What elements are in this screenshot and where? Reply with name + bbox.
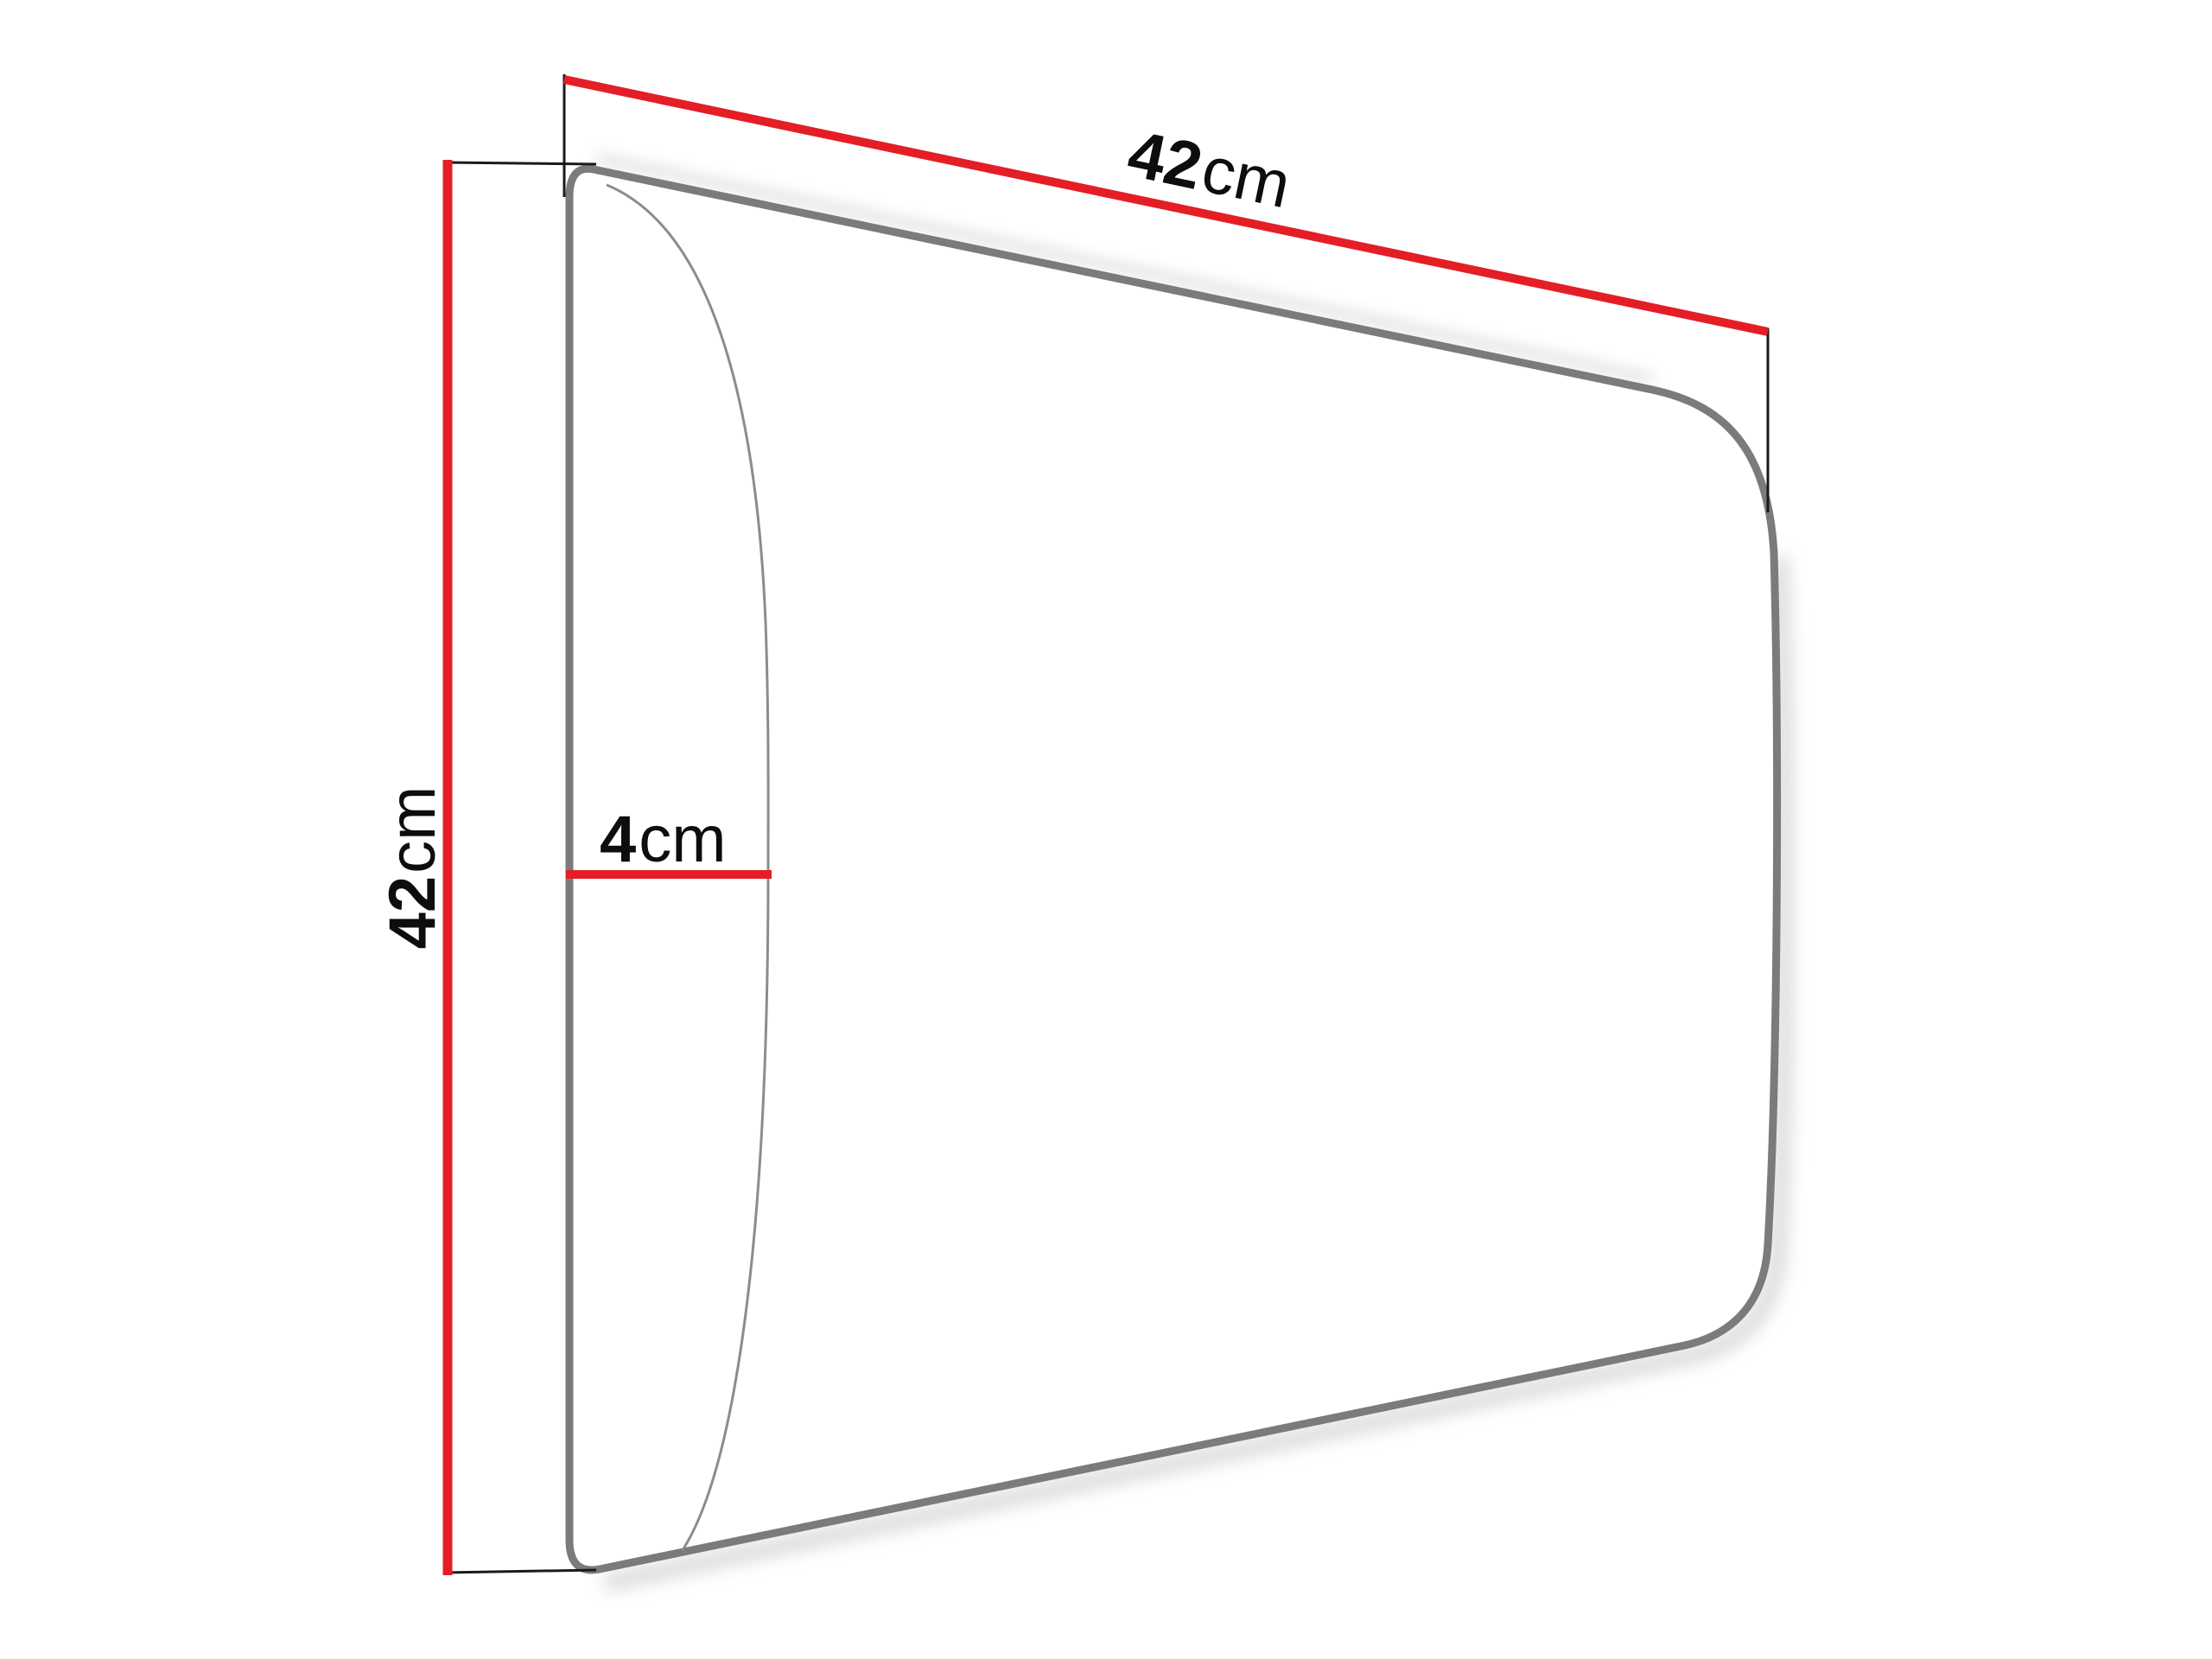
panel-outline xyxy=(569,168,1777,1570)
depth-label: 4cm xyxy=(600,803,727,876)
height-label-value: 42 xyxy=(376,876,449,950)
width-label-value: 42 xyxy=(1122,117,1208,204)
height-label: 42cm xyxy=(376,786,449,950)
panel-dimension-diagram: 42cm 42cm 4cm xyxy=(0,0,2212,1659)
extension-line-left-top xyxy=(446,162,596,164)
depth-label-value: 4 xyxy=(600,803,636,876)
height-label-unit: cm xyxy=(376,786,449,874)
depth-label-unit: cm xyxy=(639,803,726,876)
